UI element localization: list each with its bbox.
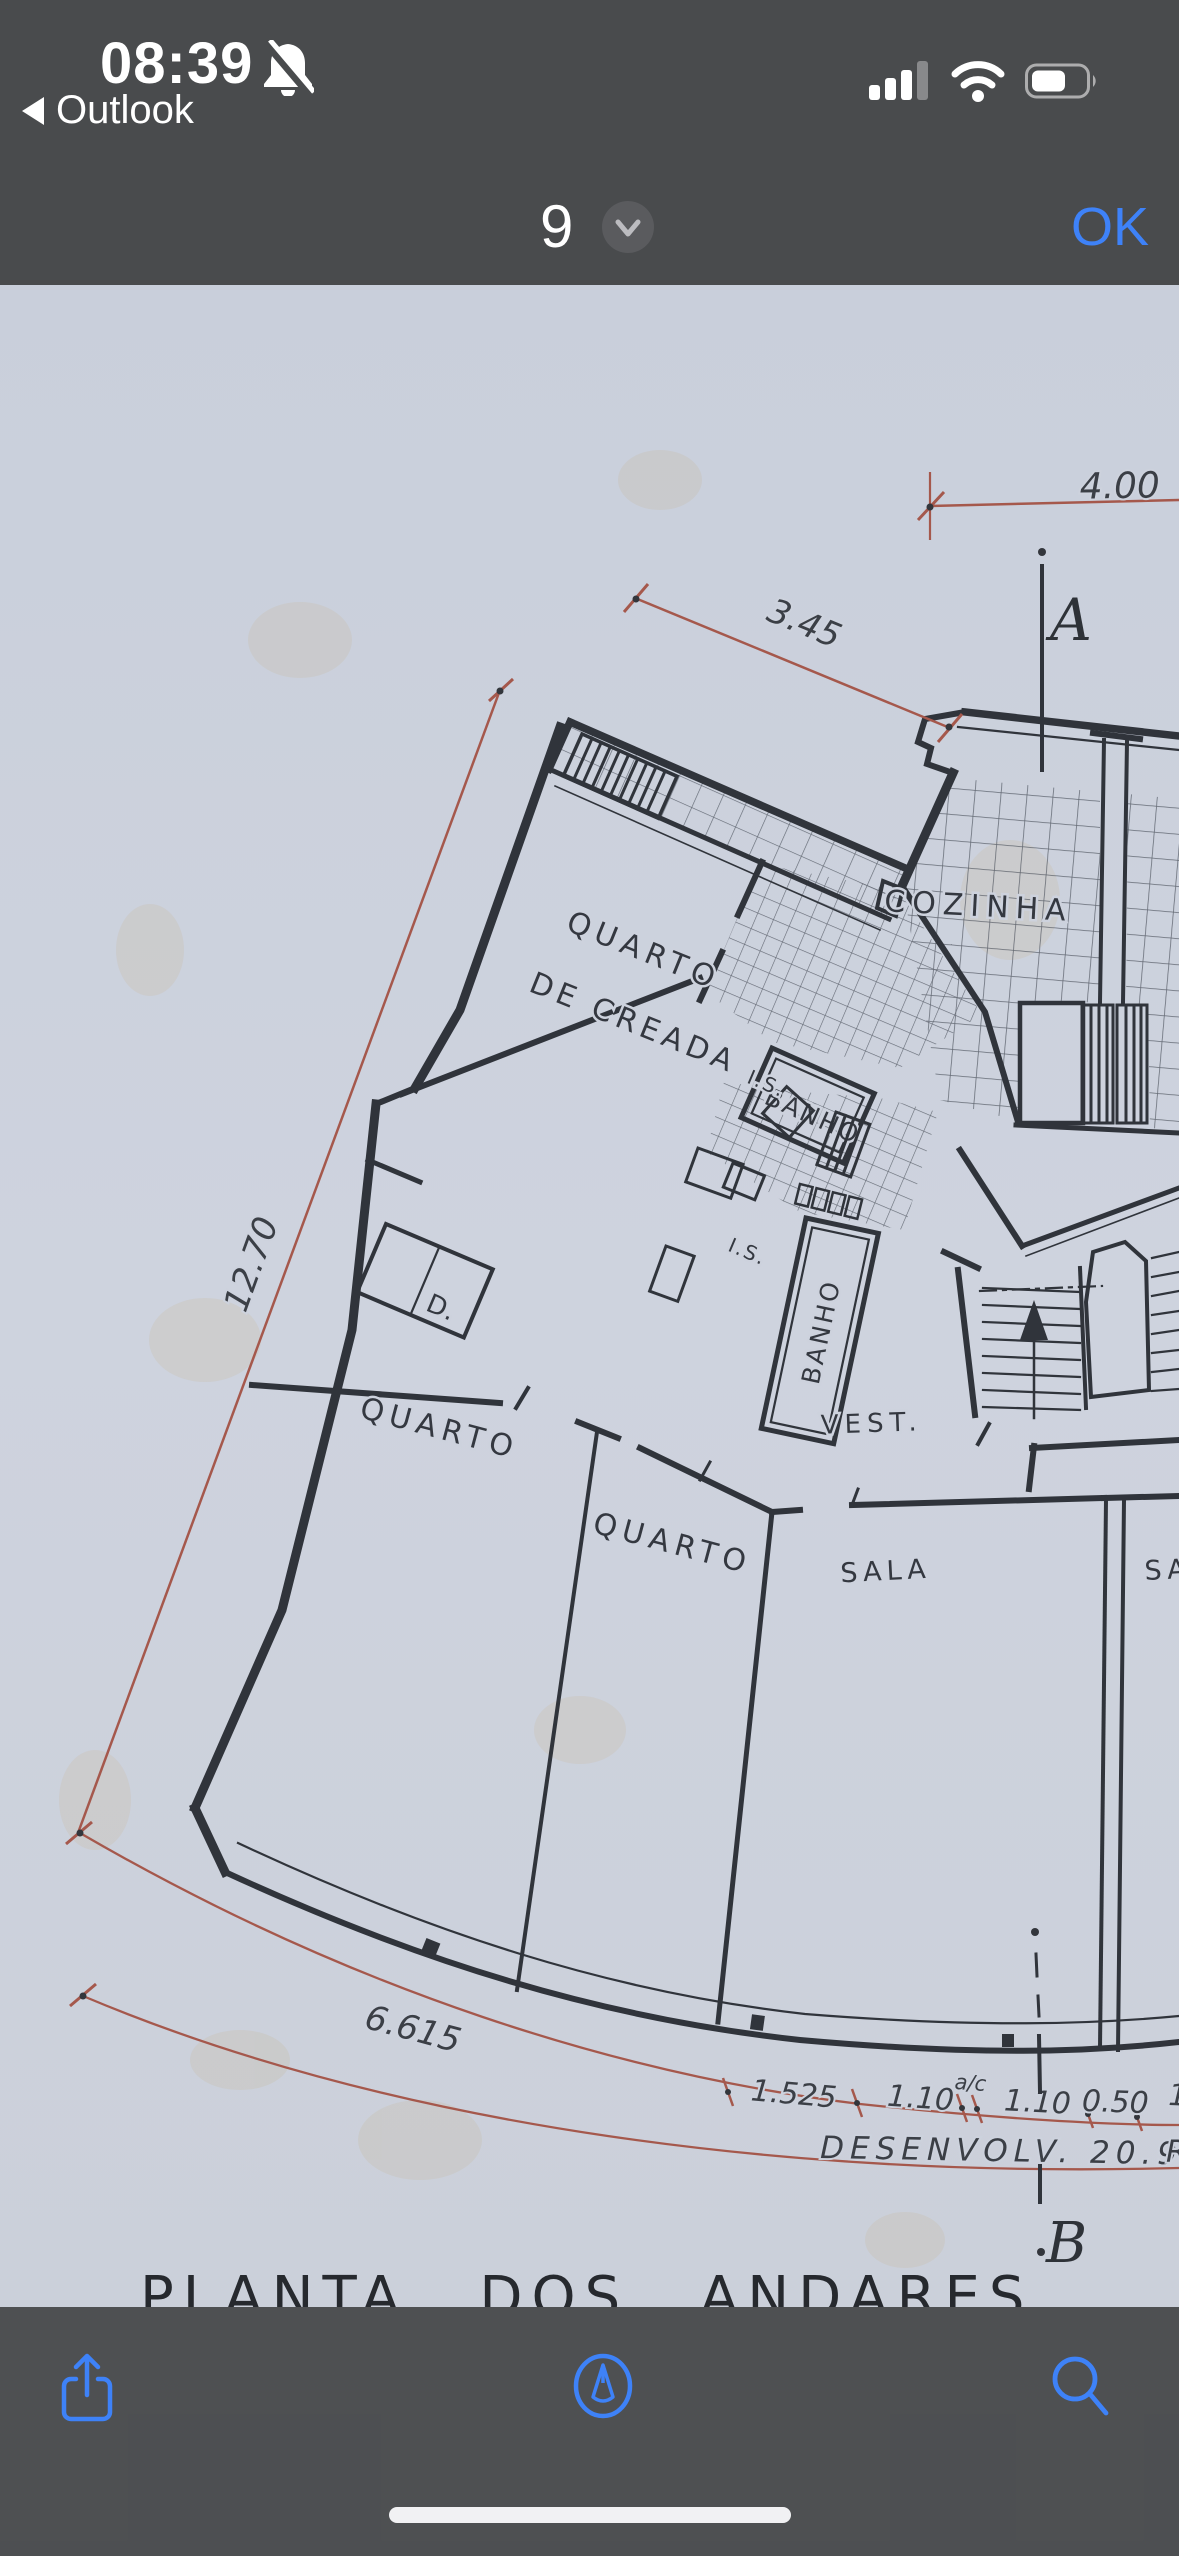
markup-button[interactable] <box>572 2353 634 2424</box>
back-chevron-icon <box>22 96 46 126</box>
share-button[interactable] <box>58 2353 116 2430</box>
notifications-silenced-icon <box>262 40 314 101</box>
markup-icon <box>572 2353 634 2419</box>
floorplan-document[interactable]: D. <box>0 285 1179 2307</box>
page-dropdown-button[interactable] <box>602 201 654 253</box>
dim-ac: a/c <box>954 2070 988 2096</box>
page-number: 9 <box>540 192 573 261</box>
search-button[interactable] <box>1048 2353 1112 2426</box>
drawing-title: PLANTA DOS ANDARES <box>140 2265 1033 2307</box>
viewer-toolbar <box>0 2307 1179 2556</box>
dim-developed: DESENVOLV. 20.98 <box>820 2130 1179 2173</box>
search-icon <box>1048 2353 1112 2421</box>
clock: 08:39 <box>100 30 253 97</box>
share-icon <box>58 2353 116 2425</box>
status-and-nav-bar: 08:39 Outlook <box>0 0 1179 285</box>
dim-top: 4.00 <box>1079 465 1160 507</box>
iphone-screen: 08:39 Outlook <box>0 0 1179 2556</box>
cellular-signal-icon <box>869 58 931 102</box>
back-to-app-link[interactable]: Outlook <box>22 88 194 133</box>
living-label: SALA <box>840 1554 932 1590</box>
dim-partial-r: R <box>1166 2135 1179 2170</box>
dim-s1: 1.525 <box>750 2073 839 2115</box>
battery-icon <box>1025 62 1099 102</box>
dim-s4: 0.50 <box>1081 2084 1149 2121</box>
wifi-icon <box>947 58 1009 102</box>
home-indicator[interactable] <box>389 2507 791 2523</box>
dim-s2: 1.10 <box>886 2079 955 2119</box>
dim-s5: 1. <box>1168 2078 1179 2114</box>
section-a-label: A <box>1045 586 1092 654</box>
floorplan-drawing: D. <box>0 285 1179 2307</box>
dim-s3: 1.10 <box>1003 2083 1072 2121</box>
back-app-label: Outlook <box>56 88 194 133</box>
section-b-label: B <box>1045 2211 1087 2276</box>
status-icons <box>869 58 1099 102</box>
living2-label: SA <box>1144 1554 1179 1587</box>
vestibule-label: VEST. <box>820 1407 923 1441</box>
ok-button[interactable]: OK <box>1071 196 1149 258</box>
chevron-down-icon <box>602 201 654 253</box>
